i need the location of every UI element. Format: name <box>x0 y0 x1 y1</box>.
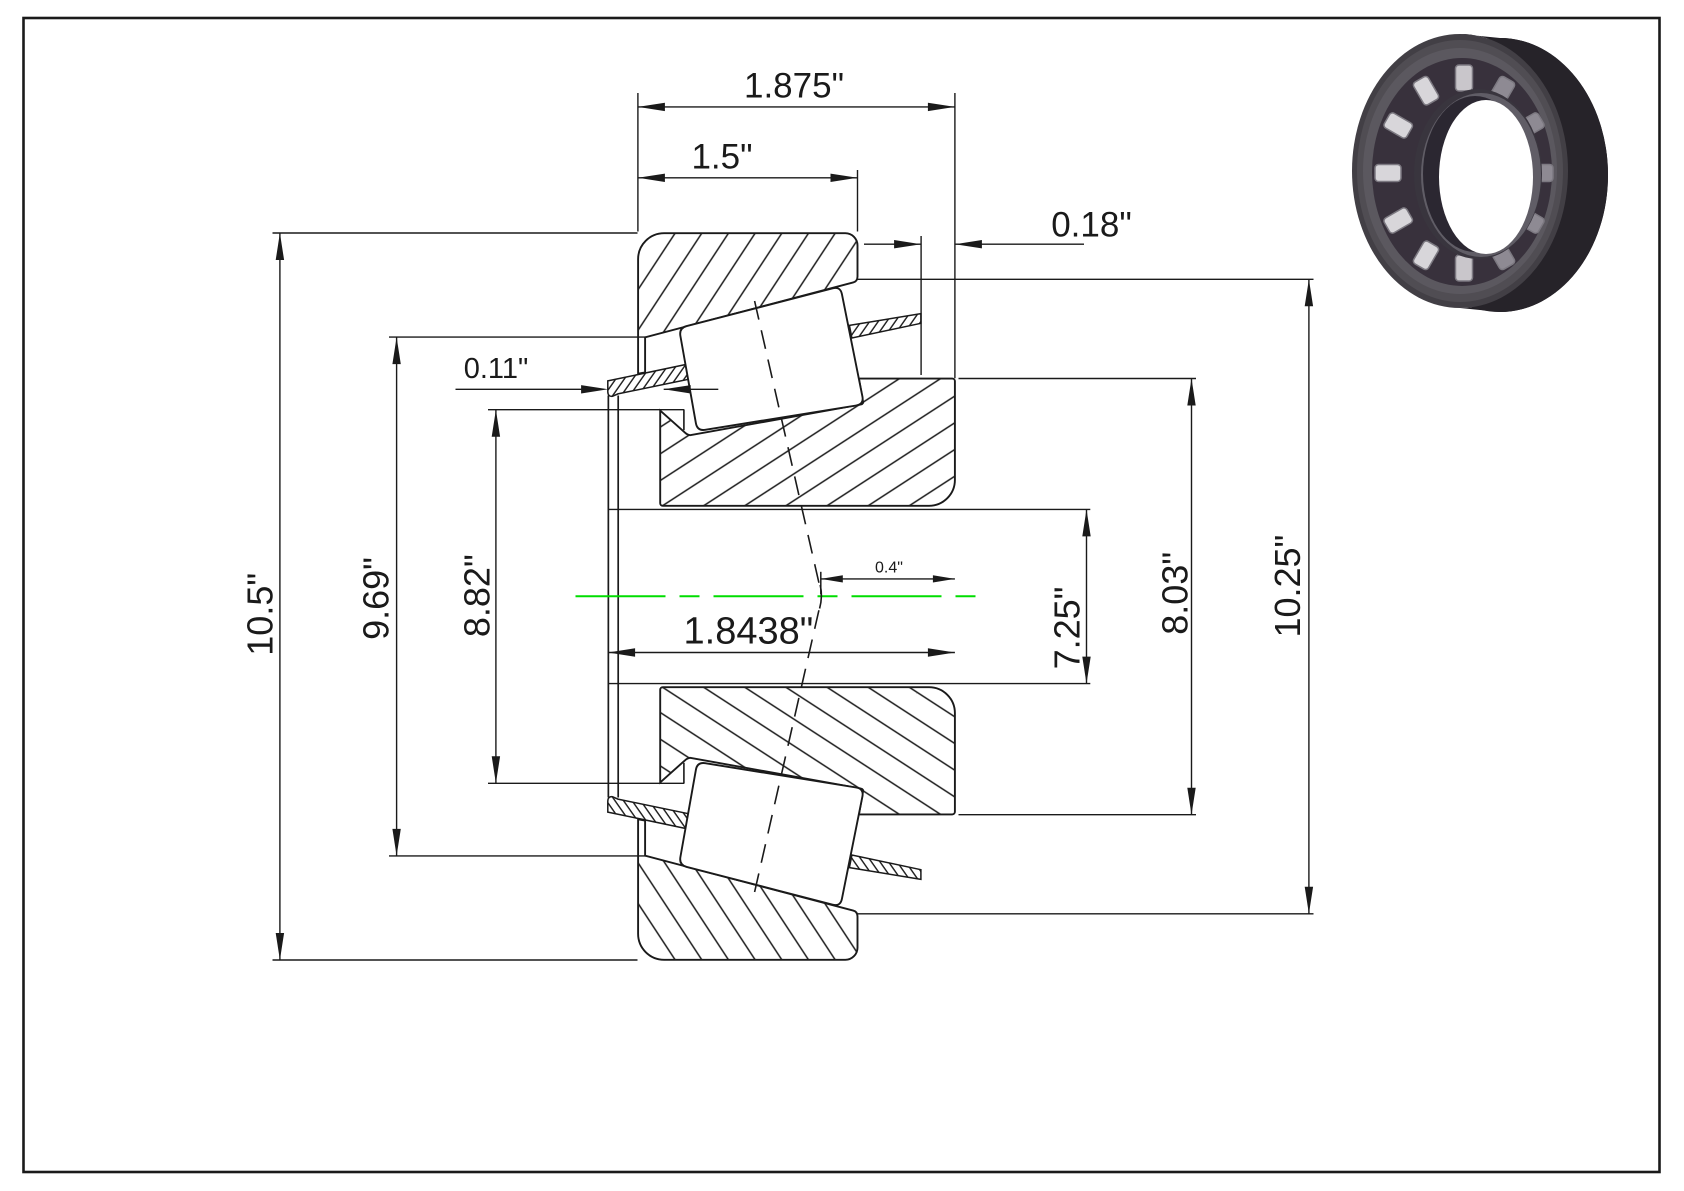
svg-text:10.5": 10.5" <box>240 573 281 656</box>
svg-text:1.5": 1.5" <box>691 138 752 177</box>
svg-text:1.875": 1.875" <box>744 67 844 106</box>
svg-text:7.25": 7.25" <box>1047 587 1088 670</box>
svg-text:0.18": 0.18" <box>1051 206 1132 245</box>
svg-text:8.03": 8.03" <box>1154 552 1195 635</box>
svg-text:9.69": 9.69" <box>355 557 396 640</box>
svg-text:8.82": 8.82" <box>456 554 497 637</box>
svg-text:10.25": 10.25" <box>1267 535 1308 638</box>
svg-text:1.8438": 1.8438" <box>684 611 814 653</box>
svg-text:0.4": 0.4" <box>875 560 903 577</box>
svg-text:0.11": 0.11" <box>464 353 529 385</box>
